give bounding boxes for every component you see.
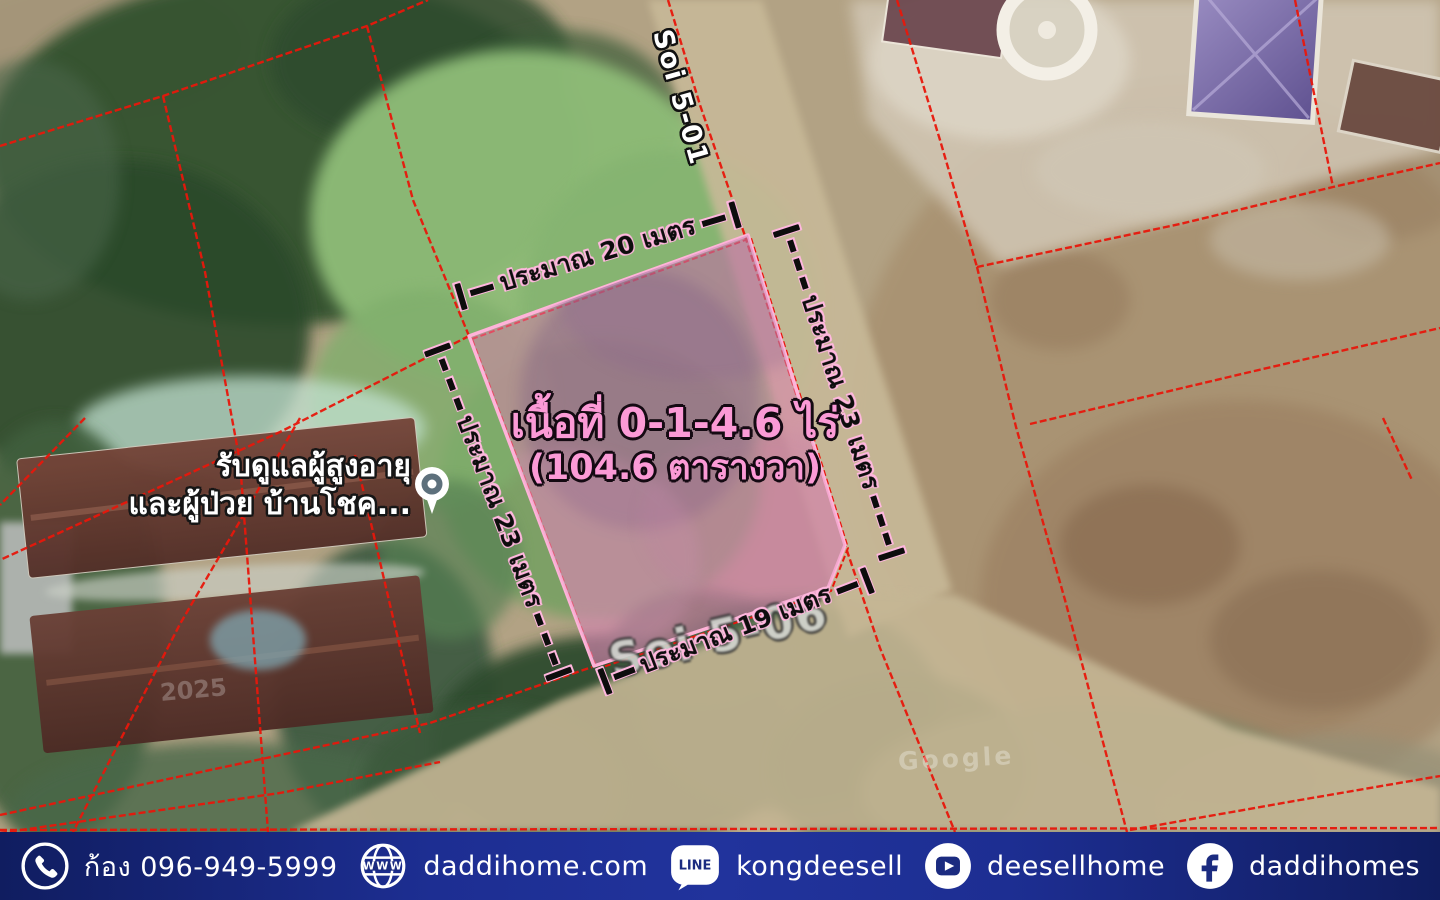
dimension-dash [613,667,636,680]
facebook-icon [1185,841,1235,891]
line-label: kongdeesell [736,851,903,882]
line-icon: LINE [668,841,722,891]
plot-area-label: เนื้อที่ 0-1-4.6 ไร่ (104.6 ตารางวา) [455,400,895,489]
plot-area-line1: เนื้อที่ 0-1-4.6 ไร่ [455,400,895,447]
contact-phone: ก้อง 096-949-5999 [20,841,338,891]
youtube-icon [923,841,973,891]
website-label: daddihome.com [423,851,648,882]
facebook-label: daddihomes [1249,851,1420,882]
place-name-line1: รับดูแลผู้สูงอายุ [103,448,411,486]
dimension-dash [787,239,809,290]
listing-image: Soi 5-01 Soi 5-06 2025 Google รับดูแลผู้… [0,0,1440,900]
dimension-dash [534,613,559,666]
contact-facebook: daddihomes [1185,841,1420,891]
globe-icon: WWW [357,840,409,892]
contact-youtube: deesellhome [923,841,1165,891]
dimension-dash [836,581,859,594]
plot-area-line2: (104.6 ตารางวา) [455,447,895,489]
phone-label: ก้อง 096-949-5999 [84,845,338,888]
dimension-dash [870,495,892,546]
contact-website: WWW daddihome.com [357,840,648,892]
place-name-label: รับดูแลผู้สูงอายุ และผู้ป่วย บ้านโชค... [103,448,411,523]
contact-footer-bar: ก้อง 096-949-5999 WWW daddihome.com LINE… [0,832,1440,900]
satellite-map: Soi 5-01 Soi 5-06 2025 Google รับดูแลผู้… [0,0,1440,832]
place-name-line2: และผู้ป่วย บ้านโชค... [103,486,411,524]
contact-line: LINE kongdeesell [668,841,903,891]
map-watermark-year: 2025 [159,673,228,707]
line-badge-text: LINE [679,859,712,874]
dimension-dash [470,283,495,296]
dimension-dash [701,214,726,227]
globe-www-text: WWW [363,860,404,873]
youtube-label: deesellhome [987,851,1165,882]
map-watermark-brand: Google [897,741,1015,776]
phone-icon [20,841,70,891]
